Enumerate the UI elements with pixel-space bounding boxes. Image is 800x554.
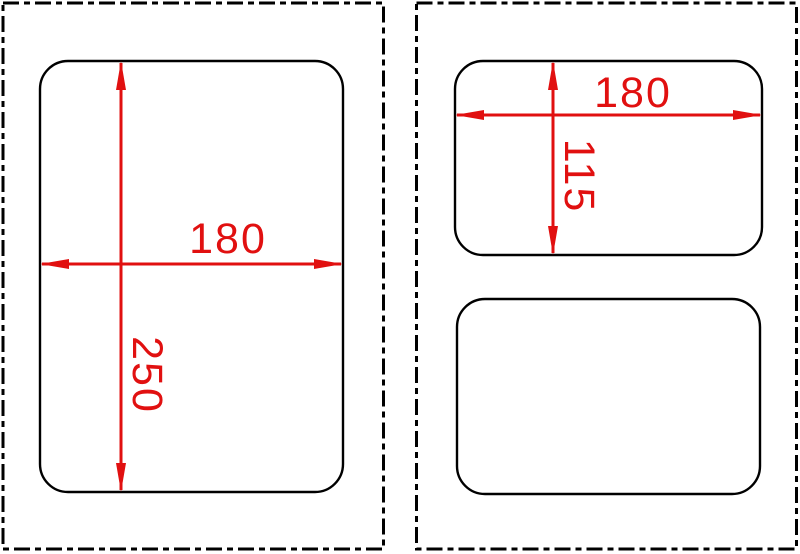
right-vertical-dimension-arrowhead-down	[548, 226, 558, 255]
left-panel: 250 180	[3, 3, 384, 549]
left-horizontal-dimension-label: 180	[189, 215, 267, 263]
left-horizontal-dimension-arrowhead-left	[40, 259, 69, 269]
right-vertical-dimension-label: 115	[555, 139, 603, 214]
left-vertical-dimension: 250	[116, 61, 171, 492]
right-horizontal-dimension-label: 180	[594, 69, 672, 117]
right-horizontal-dimension: 180	[455, 69, 762, 120]
left-vertical-dimension-arrowhead-up	[116, 61, 126, 90]
left-panel-cutline-border	[3, 3, 384, 549]
left-panel-rounded-rect	[40, 61, 343, 492]
right-vertical-dimension-arrowhead-up	[548, 61, 558, 90]
left-horizontal-dimension-arrowhead-right	[314, 259, 343, 269]
right-panel-bottom-rounded-rect	[457, 299, 760, 494]
left-vertical-dimension-arrowhead-down	[116, 463, 126, 492]
right-horizontal-dimension-arrowhead-left	[455, 110, 484, 120]
drawing-canvas: 250 180 115	[0, 0, 800, 554]
right-panel: 115 180	[417, 3, 797, 549]
left-vertical-dimension-label: 250	[123, 336, 171, 414]
right-horizontal-dimension-arrowhead-right	[733, 110, 762, 120]
left-horizontal-dimension: 180	[40, 215, 343, 269]
technical-drawing-page: 250 180 115	[0, 0, 800, 554]
